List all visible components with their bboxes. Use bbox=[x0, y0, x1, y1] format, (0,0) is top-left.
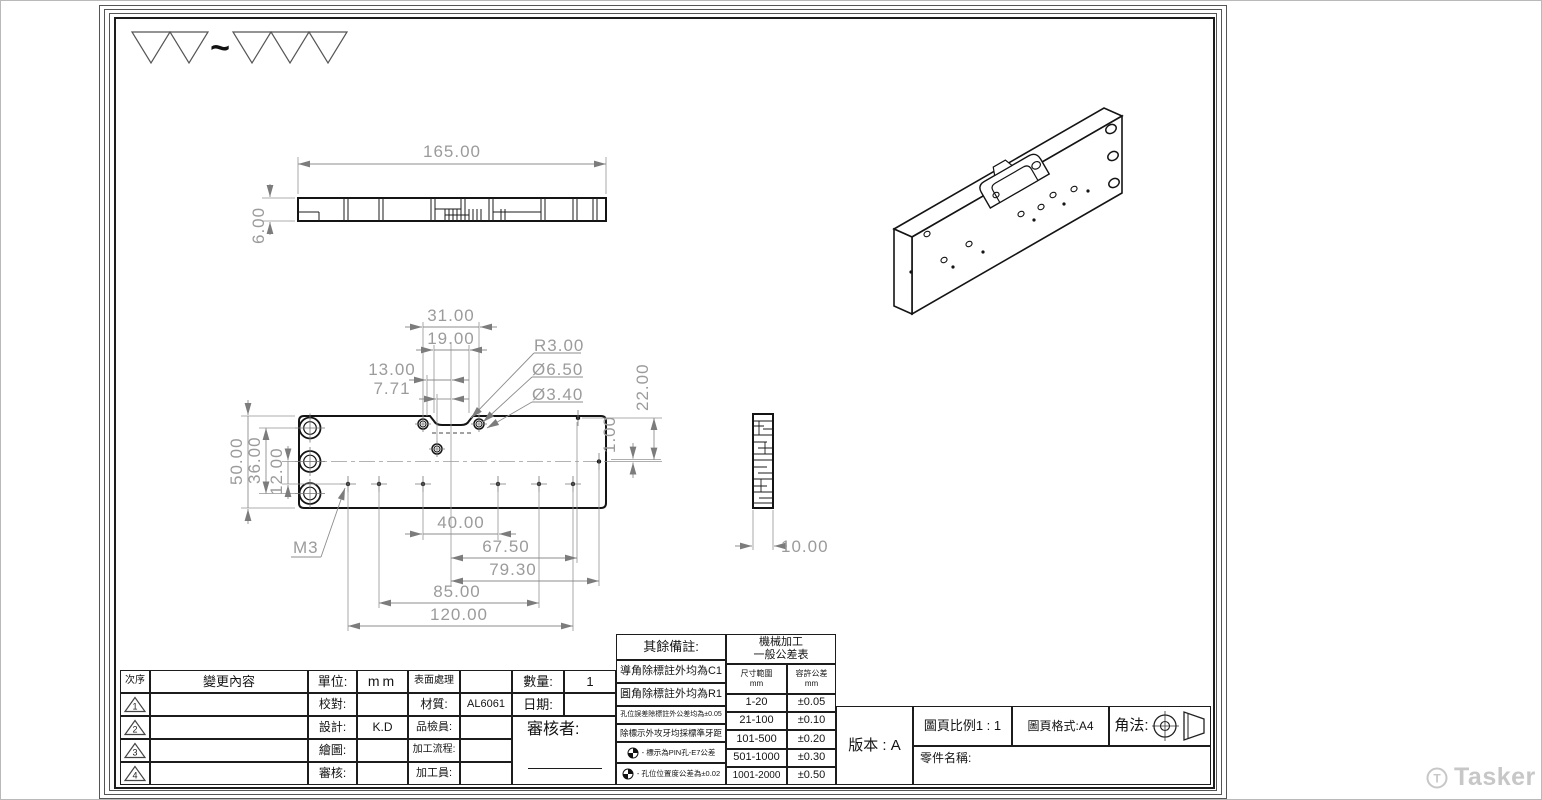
operator-value bbox=[460, 762, 512, 785]
tol-value-2: ±0.10 bbox=[787, 712, 836, 730]
revision-change-4 bbox=[150, 762, 308, 785]
revision-mark-3: 3 bbox=[120, 739, 150, 762]
dim-40: 40.00 bbox=[437, 513, 485, 532]
svg-text:4: 4 bbox=[132, 771, 137, 781]
dim-771: 7.71 bbox=[373, 379, 410, 398]
dim-top-length: 165.00 bbox=[423, 142, 481, 161]
dim-d340: Ø3.40 bbox=[532, 385, 583, 404]
note-fillet: 圓角除標註外均為R1 bbox=[616, 683, 726, 706]
top-view: 165.00 6.00 bbox=[249, 142, 606, 244]
tolerance-col-range: 尺寸範圍 mm bbox=[726, 664, 787, 694]
dim-r3: R3.00 bbox=[534, 336, 584, 355]
approver-signature-line bbox=[528, 768, 602, 769]
tasker-logo-icon: T bbox=[1425, 766, 1449, 790]
tolerance-col-tol: 容許公差 mm bbox=[787, 664, 836, 694]
note-thread: 除標示外攻牙均採標準牙距 bbox=[616, 724, 726, 742]
tol-value-1: ±0.05 bbox=[787, 694, 836, 712]
dim-793: 79.30 bbox=[489, 560, 537, 579]
inspector-value bbox=[460, 716, 512, 739]
tol-value-5: ±0.50 bbox=[787, 767, 836, 785]
revision-change-1 bbox=[150, 693, 308, 716]
review-label: 審核: bbox=[308, 762, 357, 785]
position-target-icon bbox=[622, 768, 634, 780]
side-view: 10.00 bbox=[735, 414, 829, 556]
date-value bbox=[564, 693, 616, 716]
watermark-brand: Tasker bbox=[1454, 763, 1536, 792]
tol-range-5: 1001-2000 bbox=[726, 767, 787, 785]
dim-36: 36.00 bbox=[245, 436, 264, 484]
material-label: 材質: bbox=[408, 693, 460, 716]
dim-31: 31.00 bbox=[427, 306, 475, 325]
dim-d650: Ø6.50 bbox=[532, 360, 583, 379]
tol-value-3: ±0.20 bbox=[787, 730, 836, 749]
tol-range-3: 101-500 bbox=[726, 730, 787, 749]
dim-1: 1.00 bbox=[600, 416, 619, 453]
dim-m3: M3 bbox=[293, 538, 319, 557]
dim-675: 67.50 bbox=[482, 537, 530, 556]
surface-finish-icon bbox=[132, 32, 347, 63]
dim-19: 19.00 bbox=[427, 329, 475, 348]
revision-col-change: 變更內容 bbox=[150, 670, 308, 693]
drawing-sheet: ~ 165.00 6.00 bbox=[0, 0, 1542, 800]
surface-treatment-label: 表面處理 bbox=[408, 670, 460, 693]
inspector-label: 品檢員: bbox=[408, 716, 460, 739]
front-view: 31.00 19.00 13.00 7.71 R3.00 Ø6.50 Ø3.40… bbox=[227, 306, 662, 631]
approver-label: 審核者: bbox=[519, 722, 579, 739]
tolerance-table-title: 機械加工 一般公差表 bbox=[726, 634, 836, 664]
operator-label: 加工員: bbox=[408, 762, 460, 785]
svg-text:1: 1 bbox=[132, 702, 137, 712]
process-value bbox=[460, 739, 512, 762]
dim-side-width: 10.00 bbox=[781, 537, 829, 556]
dim-12: 12.00 bbox=[267, 447, 286, 495]
version-cell: 版本 : A bbox=[836, 706, 913, 785]
isometric-view bbox=[894, 108, 1122, 314]
watermark: T Tasker bbox=[1425, 763, 1536, 792]
projection-label: 角法: bbox=[1114, 718, 1148, 734]
dim-50: 50.00 bbox=[227, 437, 246, 485]
svg-text:3: 3 bbox=[132, 748, 137, 758]
process-label: 加工流程: bbox=[408, 739, 460, 762]
revision-mark-4: 4 bbox=[120, 762, 150, 785]
part-name-cell: 零件名稱: bbox=[913, 746, 1211, 785]
scale-cell: 圖頁比例1 : 1 bbox=[913, 706, 1012, 746]
check-value bbox=[357, 693, 408, 716]
revision-triangle-icon: 1 bbox=[123, 696, 147, 713]
material-value: AL6061 bbox=[460, 693, 512, 716]
design-value: K.D bbox=[357, 716, 408, 739]
qty-value: 1 bbox=[564, 670, 616, 693]
qty-label: 數量: bbox=[512, 670, 564, 693]
revision-col-seq: 次序 bbox=[120, 670, 150, 693]
dim-120: 120.00 bbox=[430, 605, 488, 624]
svg-text:T: T bbox=[1433, 771, 1441, 785]
unit-label: 單位: bbox=[308, 670, 357, 693]
draw-value bbox=[357, 739, 408, 762]
note-chamfer: 導角除標註外均為C1 bbox=[616, 660, 726, 683]
tol-range-1: 1-20 bbox=[726, 694, 787, 712]
position-target-icon bbox=[627, 747, 639, 759]
notes-title: 其餘備註: bbox=[616, 634, 726, 660]
note-hole-tol: 孔位誤差除標註外公差均為±0.05 bbox=[616, 706, 726, 724]
unit-value: mm bbox=[357, 670, 408, 693]
revision-change-3 bbox=[150, 739, 308, 762]
check-label: 校對: bbox=[308, 693, 357, 716]
revision-triangle-icon: 4 bbox=[123, 765, 147, 782]
part-name-label: 零件名稱: bbox=[920, 752, 971, 765]
revision-triangle-icon: 2 bbox=[123, 719, 147, 736]
dim-13: 13.00 bbox=[368, 360, 416, 379]
review-value bbox=[357, 762, 408, 785]
revision-mark-2: 2 bbox=[120, 716, 150, 739]
tol-value-4: ±0.30 bbox=[787, 749, 836, 767]
surface-finish-tilde: ~ bbox=[210, 29, 230, 67]
date-label: 日期: bbox=[512, 693, 564, 716]
revision-mark-1: 1 bbox=[120, 693, 150, 716]
format-cell: 圖頁格式:A4 bbox=[1012, 706, 1109, 746]
revision-triangle-icon: 3 bbox=[123, 742, 147, 759]
dim-85: 85.00 bbox=[433, 582, 481, 601]
approver-box: 審核者: bbox=[512, 716, 616, 785]
dim-22: 22.00 bbox=[633, 363, 652, 411]
third-angle-projection-icon bbox=[1152, 709, 1206, 743]
note-pin-hole: - 標示為PIN孔-E7公差 bbox=[616, 742, 726, 763]
draw-label: 繪圖: bbox=[308, 739, 357, 762]
note-position-tol: - 孔位位置度公差為±0.02 bbox=[616, 763, 726, 785]
tol-range-2: 21-100 bbox=[726, 712, 787, 730]
dim-top-thickness: 6.00 bbox=[249, 207, 268, 244]
projection-cell: 角法: bbox=[1109, 706, 1211, 746]
design-label: 設計: bbox=[308, 716, 357, 739]
svg-text:2: 2 bbox=[132, 725, 137, 735]
surface-treatment-value bbox=[460, 670, 512, 693]
tol-range-4: 501-1000 bbox=[726, 749, 787, 767]
revision-change-2 bbox=[150, 716, 308, 739]
